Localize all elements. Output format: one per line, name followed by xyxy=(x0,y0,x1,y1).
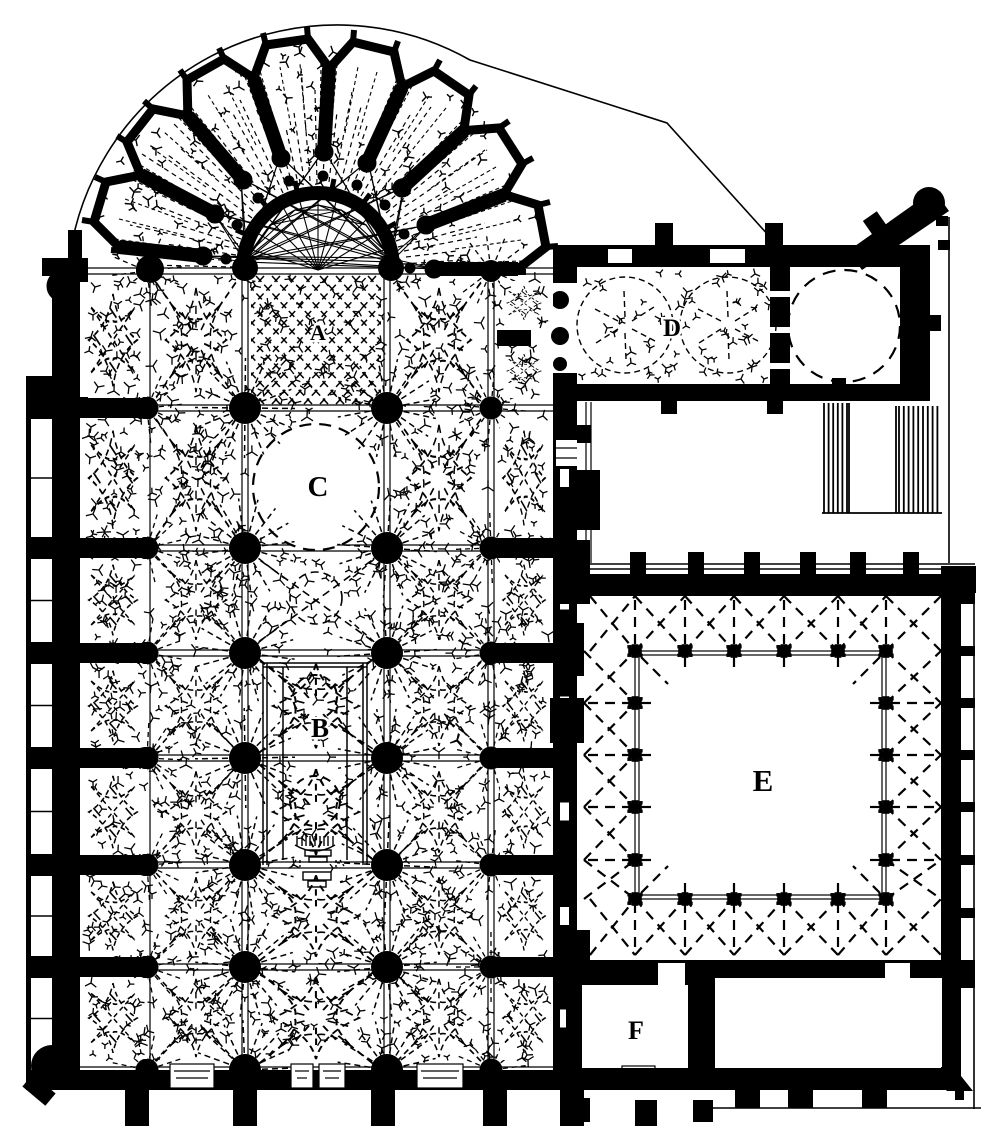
svg-text:E: E xyxy=(753,763,774,798)
svg-text:A: A xyxy=(310,320,326,345)
svg-text:C: C xyxy=(308,471,329,503)
svg-text:F: F xyxy=(628,1016,644,1045)
svg-text:D: D xyxy=(663,315,681,342)
svg-text:B: B xyxy=(311,713,329,743)
